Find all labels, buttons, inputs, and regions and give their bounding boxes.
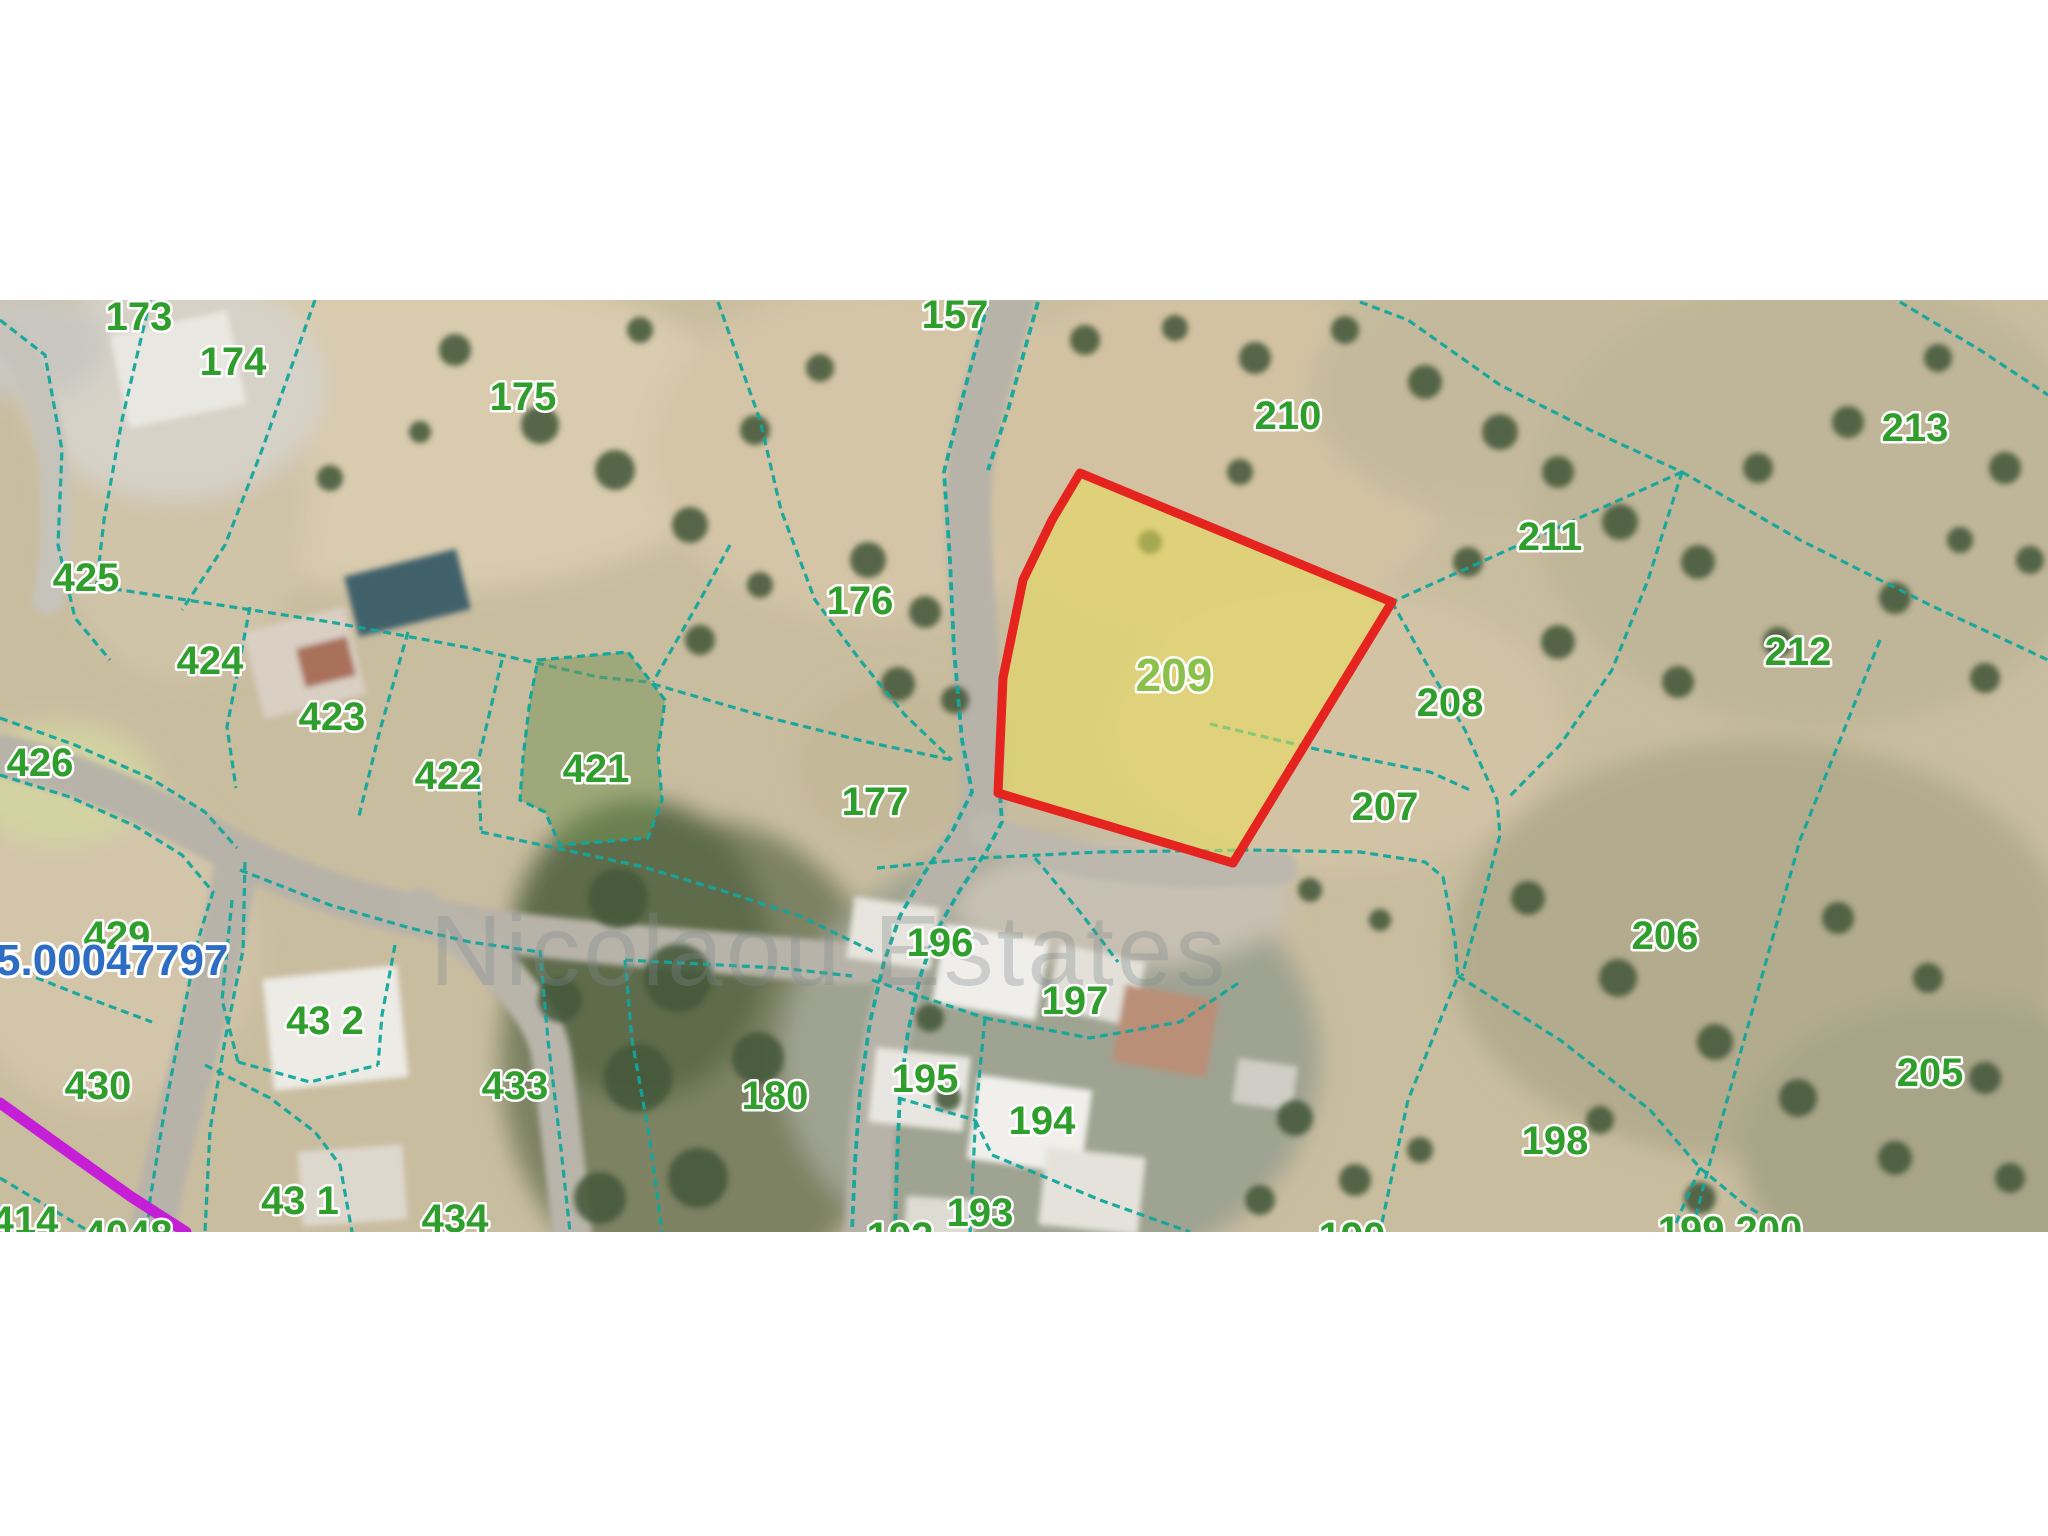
map-viewport[interactable]: Nicolaou Estates 17317417515721021321121… bbox=[0, 300, 2048, 1232]
parcel-label-426: 426 bbox=[7, 741, 74, 785]
watermark: Nicolaou Estates bbox=[430, 895, 1228, 1007]
parcel-label-209: 209 bbox=[1136, 649, 1213, 701]
parcel-label-210: 210 bbox=[1255, 394, 1322, 438]
parcel-label-434: 434 bbox=[422, 1197, 489, 1232]
parcel-label-207: 207 bbox=[1352, 785, 1419, 829]
parcel-label-173: 173 bbox=[106, 300, 173, 339]
parcel-label-43-1: 43 1 bbox=[261, 1179, 339, 1223]
parcel-label-198: 198 bbox=[1522, 1119, 1589, 1163]
parcel-label-423: 423 bbox=[299, 695, 366, 739]
parcel-label-192: 192 bbox=[867, 1215, 934, 1232]
parcel-label-196: 196 bbox=[907, 921, 974, 965]
parcel-label-430: 430 bbox=[65, 1064, 132, 1108]
parcel-label-4048: 4048 bbox=[84, 1213, 173, 1232]
parcel-label-177: 177 bbox=[842, 780, 909, 824]
parcel-label-206: 206 bbox=[1632, 914, 1699, 958]
parcel-label-208: 208 bbox=[1417, 681, 1484, 725]
reference-number-text: 5.00047797 bbox=[0, 936, 228, 985]
parcel-label-205: 205 bbox=[1897, 1051, 1964, 1095]
parcel-label-197: 197 bbox=[1042, 979, 1109, 1023]
parcel-label-157: 157 bbox=[922, 300, 989, 337]
parcel-label-212: 212 bbox=[1765, 630, 1832, 674]
parcel-label-176: 176 bbox=[827, 579, 894, 623]
parcel-label-43-2: 43 2 bbox=[286, 999, 364, 1043]
parcel-label-211: 211 bbox=[1518, 515, 1583, 559]
parcel-label-195: 195 bbox=[892, 1057, 959, 1101]
parcel-label-193: 193 bbox=[947, 1191, 1014, 1232]
parcel-label-174: 174 bbox=[200, 340, 267, 384]
parcel-label-213: 213 bbox=[1882, 406, 1949, 450]
parcel-label-421: 421 bbox=[563, 747, 630, 791]
parcel-label-194: 194 bbox=[1009, 1099, 1076, 1143]
screenshot-root: Nicolaou Estates 17317417515721021321121… bbox=[0, 0, 2048, 1536]
parcel-label-433: 433 bbox=[482, 1064, 549, 1108]
parcel-label-422: 422 bbox=[415, 754, 482, 798]
parcel-label-424: 424 bbox=[177, 639, 244, 683]
reference-number: 5.00047797 bbox=[0, 936, 228, 985]
parcel-label-414: 414 bbox=[0, 1199, 59, 1232]
parcel-label-199-200: 199 200 bbox=[1658, 1209, 1803, 1232]
parcel-label-180: 180 bbox=[742, 1074, 809, 1118]
cadastral-map[interactable]: Nicolaou Estates 17317417515721021321121… bbox=[0, 300, 2048, 1232]
parcel-label-190: 190 bbox=[1319, 1215, 1386, 1232]
parcel-label-175: 175 bbox=[490, 375, 557, 419]
parcel-label-425: 425 bbox=[53, 556, 120, 600]
watermark-text: Nicolaou Estates bbox=[430, 895, 1228, 1007]
